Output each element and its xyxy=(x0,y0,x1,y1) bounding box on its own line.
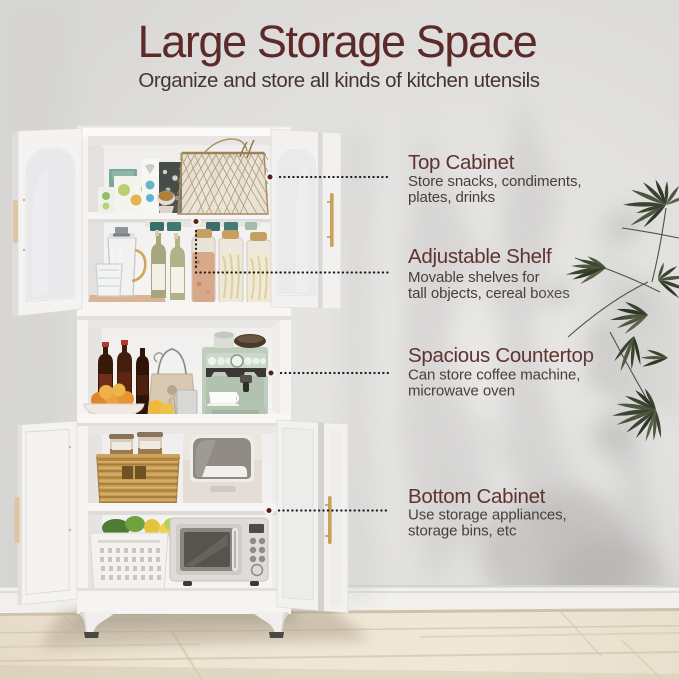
svg-text:Adjustable Shelf: Adjustable Shelf xyxy=(408,245,552,268)
svg-text:Top Cabinet: Top Cabinet xyxy=(408,151,515,174)
svg-text:Bottom Cabinet: Bottom Cabinet xyxy=(408,485,546,508)
svg-text:plates, drinks: plates, drinks xyxy=(408,189,495,206)
svg-text:Store snacks, condiments,: Store snacks, condiments, xyxy=(408,173,581,190)
svg-text:Organize and store all kinds o: Organize and store all kinds of kitchen … xyxy=(138,69,539,92)
svg-text:tall objects, cereal boxes: tall objects, cereal boxes xyxy=(408,285,570,302)
svg-text:Movable shelves for: Movable shelves for xyxy=(408,269,540,286)
svg-text:Spacious Countertop: Spacious Countertop xyxy=(408,344,594,367)
svg-text:Large Storage Space: Large Storage Space xyxy=(138,16,537,67)
svg-text:storage bins, etc: storage bins, etc xyxy=(408,523,517,540)
svg-text:Can store coffee machine,: Can store coffee machine, xyxy=(408,367,580,384)
svg-text:Use storage appliances,: Use storage appliances, xyxy=(408,507,567,524)
svg-text:microwave oven: microwave oven xyxy=(408,383,515,400)
